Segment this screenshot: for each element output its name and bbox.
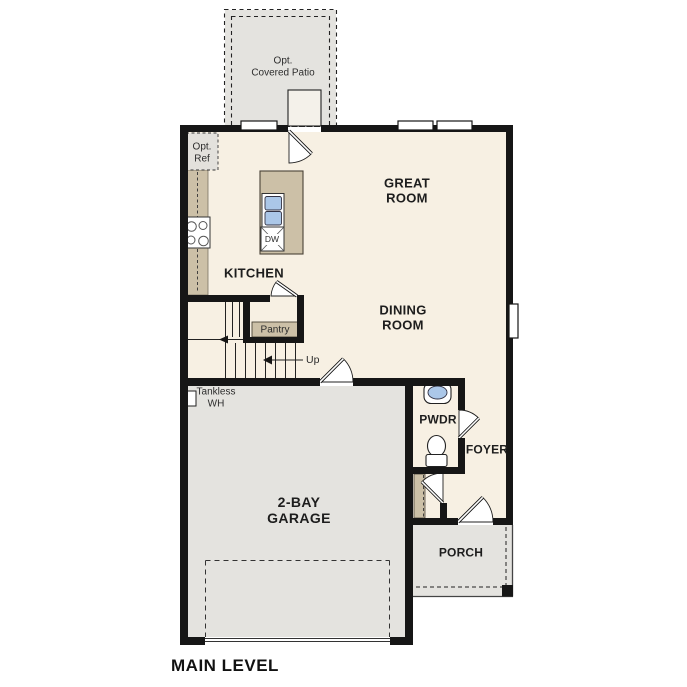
porch-label: PORCH xyxy=(439,546,483,559)
porch-post xyxy=(502,585,513,597)
kitchen-label: KITCHEN xyxy=(224,267,284,282)
window xyxy=(509,304,518,338)
opt-ref-label: Opt. Ref xyxy=(193,142,212,165)
kitchen-sink xyxy=(262,194,284,228)
plan-title: MAIN LEVEL xyxy=(171,656,279,676)
up-label: Up xyxy=(306,354,319,366)
patio-door-slab xyxy=(288,90,321,126)
garage-label: 2-BAY GARAGE xyxy=(267,494,331,526)
dining-room-label: DINING ROOM xyxy=(379,303,426,332)
tankless-wh-label: Tankless WH xyxy=(197,387,236,410)
covered-patio-label: Opt. Covered Patio xyxy=(251,56,314,79)
tankless-water-heater xyxy=(187,391,196,406)
window xyxy=(398,121,433,130)
great-room-label: GREAT ROOM xyxy=(384,176,430,205)
window xyxy=(241,121,277,130)
toilet xyxy=(426,436,447,467)
floor-plan-graphics xyxy=(0,0,687,687)
floor-plan: Opt. Covered Patio Opt. Ref GREAT ROOM K… xyxy=(0,0,687,687)
foyer-label: FOYER xyxy=(466,443,508,456)
pantry-label: Pantry xyxy=(261,324,290,336)
window xyxy=(437,121,472,130)
dishwasher-label: DW xyxy=(265,234,279,244)
pwdr-label: PWDR xyxy=(419,413,456,426)
